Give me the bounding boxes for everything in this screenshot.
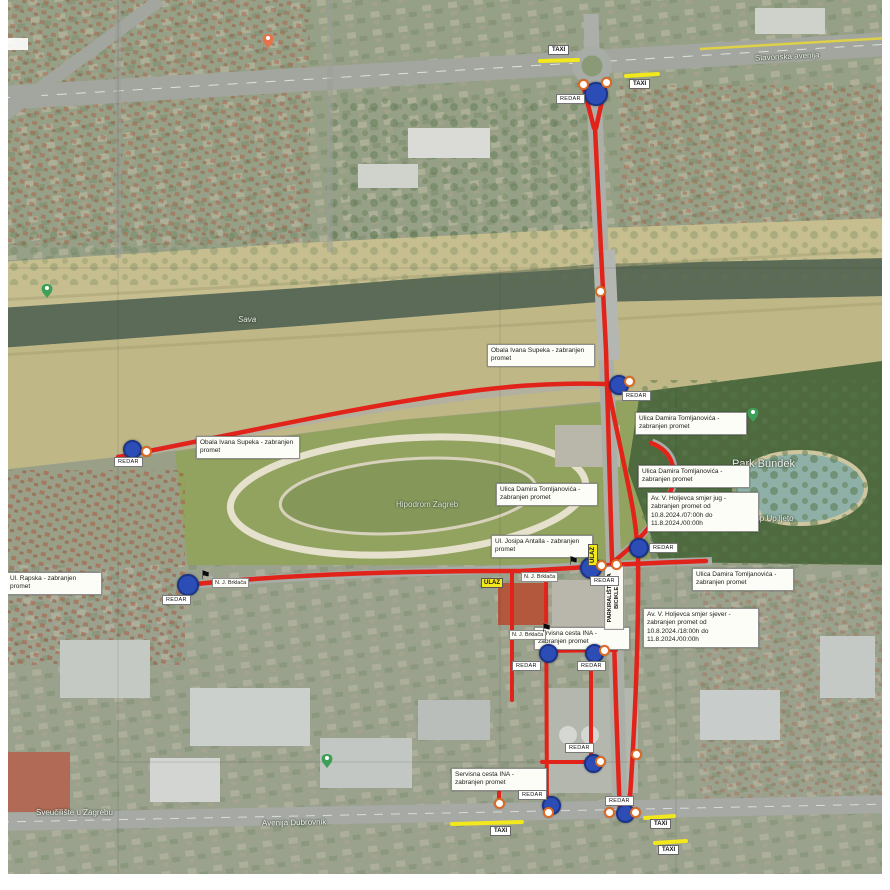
taxi-badge: TAXI: [548, 45, 569, 55]
annotation-box: Obala Ivana Supeka - zabranjen promet: [487, 344, 595, 367]
taxi-badge: TAXI: [490, 826, 511, 836]
annotation-box: Av. V. Holjevca smjer sjever - zabranjen…: [643, 608, 759, 648]
map-label-slavonska: Slavonska avenija: [755, 50, 820, 62]
flag-icon: ⚑: [568, 555, 579, 567]
redar-badge: REDAR: [649, 543, 678, 553]
annotation-box: Ulica Damira Tomljanovića - zabranjen pr…: [635, 412, 747, 435]
annotation-box: Ulica Damira Tomljanovića - zabranjen pr…: [638, 465, 750, 488]
road-closure-map: Slavonska avenija Sava Park Bundek Pop U…: [0, 0, 890, 890]
frame-edge-bottom: [0, 874, 890, 890]
flag-icon: ⚑: [541, 622, 552, 634]
redar-badge: REDAR: [512, 661, 541, 671]
frame-edge-left: [0, 0, 8, 890]
redar-badge: REDAR: [605, 796, 634, 806]
taxi-badge: TAXI: [650, 819, 671, 829]
annotation-box: Ulica Damira Tomljanovića - zabranjen pr…: [692, 568, 794, 591]
checkpoint-dot: [141, 446, 152, 457]
checkpoint-dot: [630, 807, 641, 818]
checkpoint-dot: [599, 645, 610, 656]
annotation-box: Servisna cesta INA - zabranjen promet: [451, 768, 547, 791]
map-label-hipodrom: Hipodrom Zagreb: [396, 500, 458, 509]
frame-edge-right: [882, 0, 890, 890]
checkpoint-dot: [596, 560, 607, 571]
redar-badge: REDAR: [114, 457, 143, 467]
taxi-badge: TAXI: [629, 79, 650, 89]
street-label: N. J. Brklača: [212, 578, 249, 588]
redar-badge: REDAR: [518, 790, 547, 800]
annotation-box: Ul. Rapska - zabranjen promet: [6, 572, 102, 595]
map-label-dubrovnik: Avenija Dubrovnik: [262, 817, 326, 827]
redar-badge: REDAR: [577, 661, 606, 671]
checkpoint-dot: [595, 286, 606, 297]
checkpoint-dot: [595, 756, 606, 767]
annotation-box: Obala Ivana Supeka - zabranjen promet: [196, 436, 300, 459]
map-label-sava: Sava: [238, 315, 256, 324]
annotation-box: Ulica Damira Tomljanovića - zabranjen pr…: [496, 483, 598, 506]
steward-dot: [539, 644, 558, 663]
redar-badge: REDAR: [556, 94, 585, 104]
steward-dot: [177, 574, 199, 596]
redar-badge: REDAR: [622, 391, 651, 401]
taxi-badge: TAXI: [658, 845, 679, 855]
checkpoint-dot: [611, 559, 622, 570]
checkpoint-dot: [604, 807, 615, 818]
redar-badge: REDAR: [162, 595, 191, 605]
redar-badge: REDAR: [590, 576, 619, 586]
checkpoint-dot: [578, 79, 589, 90]
overlay-layer: Slavonska avenija Sava Park Bundek Pop U…: [0, 0, 890, 890]
redar-badge: REDAR: [565, 743, 594, 753]
annotation-box: Av. V. Holjevca smjer jug - zabranjen pr…: [647, 492, 759, 532]
ulaz-badge: ULAZ: [481, 578, 503, 588]
steward-dot: [629, 538, 649, 558]
checkpoint-dot: [494, 798, 505, 809]
checkpoint-dot: [631, 749, 642, 760]
street-label: N. J. Brklača: [521, 572, 558, 582]
checkpoint-dot: [543, 807, 554, 818]
flag-icon: ⚑: [200, 569, 211, 581]
map-label-sveuciliste: Sveučilište u Zagrebu: [36, 808, 113, 817]
checkpoint-dot: [624, 376, 635, 387]
checkpoint-dot: [601, 77, 612, 88]
